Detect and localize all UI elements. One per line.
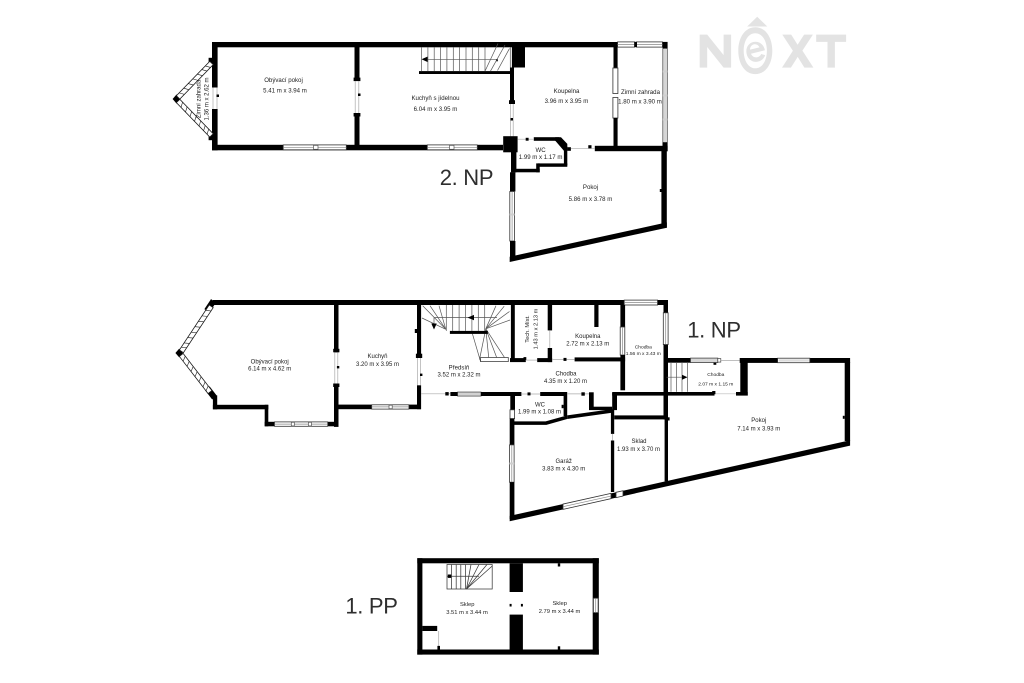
svg-text:Pokoj: Pokoj [751, 418, 766, 424]
svg-text:Sklep: Sklep [552, 601, 567, 607]
svg-text:7.14 m x 3.93 m: 7.14 m x 3.93 m [737, 427, 780, 433]
svg-text:1. NP: 1. NP [687, 318, 741, 343]
svg-text:3.52 m x 2.32 m: 3.52 m x 2.32 m [437, 373, 480, 379]
svg-text:Chodba: Chodba [555, 372, 577, 378]
svg-text:2.72 m x 2.13 m: 2.72 m x 2.13 m [566, 341, 609, 347]
svg-text:3.20 m x 3.95 m: 3.20 m x 3.95 m [356, 362, 399, 368]
svg-text:1. PP: 1. PP [345, 594, 397, 619]
svg-text:6.14 m x 4.62 m: 6.14 m x 4.62 m [248, 367, 291, 373]
svg-text:5.41 m x 3.94 m: 5.41 m x 3.94 m [263, 88, 307, 95]
svg-text:Kuchyň s jídelnou: Kuchyň s jídelnou [411, 95, 459, 102]
svg-text:1.93 m x 3.70 m: 1.93 m x 3.70 m [617, 447, 660, 453]
svg-text:3.51 m x 3.44 m: 3.51 m x 3.44 m [446, 610, 488, 616]
svg-text:1.43 m x 2.13 m: 1.43 m x 2.13 m [534, 308, 540, 349]
svg-text:Koupelna: Koupelna [575, 334, 601, 340]
svg-text:1.36 m x 2.62 m: 1.36 m x 2.62 m [205, 77, 211, 120]
svg-text:Sklad: Sklad [631, 439, 646, 445]
svg-text:3.96 m x 3.95 m: 3.96 m x 3.95 m [545, 98, 589, 105]
svg-text:Garáž: Garáž [556, 459, 572, 465]
svg-text:Chodba: Chodba [707, 372, 724, 378]
svg-text:Obývací pokoj: Obývací pokoj [264, 77, 303, 84]
svg-text:2. NP: 2. NP [440, 165, 494, 190]
svg-text:Chodba: Chodba [635, 345, 652, 351]
svg-text:WC: WC [535, 403, 546, 409]
svg-text:Obývací pokoj: Obývací pokoj [251, 359, 289, 365]
svg-text:Pokoj: Pokoj [583, 184, 598, 191]
svg-text:1.99 m x 1.17 m: 1.99 m x 1.17 m [519, 154, 563, 161]
svg-text:1.99 m x 1.08 m: 1.99 m x 1.08 m [518, 409, 561, 415]
svg-text:Kuchyň: Kuchyň [367, 354, 387, 360]
svg-text:5.86 m x 3.78 m: 5.86 m x 3.78 m [569, 196, 613, 203]
svg-text:3.83 m x 4.30 m: 3.83 m x 4.30 m [542, 467, 585, 473]
svg-text:Zimní zahrada: Zimní zahrada [621, 89, 661, 96]
svg-text:Koupelna: Koupelna [554, 88, 580, 95]
svg-text:2.07 m x 1.15 m: 2.07 m x 1.15 m [698, 382, 733, 388]
svg-text:WC: WC [536, 147, 547, 154]
svg-text:2.79 m x 3.44 m: 2.79 m x 3.44 m [539, 609, 581, 615]
svg-text:Předsíň: Předsíň [449, 365, 470, 371]
svg-text:Sklep: Sklep [460, 602, 475, 608]
svg-text:Tech. Míst.: Tech. Míst. [525, 315, 531, 343]
svg-text:Zimní zahrada: Zimní zahrada [197, 79, 203, 118]
svg-text:1.56 m x 3.43 m: 1.56 m x 3.43 m [626, 351, 661, 357]
svg-text:4.35 m x 1.20 m: 4.35 m x 1.20 m [544, 379, 587, 385]
svg-text:6.04 m x 3.95 m: 6.04 m x 3.95 m [414, 106, 458, 113]
svg-text:1.80 m x 3.90 m: 1.80 m x 3.90 m [618, 99, 662, 106]
